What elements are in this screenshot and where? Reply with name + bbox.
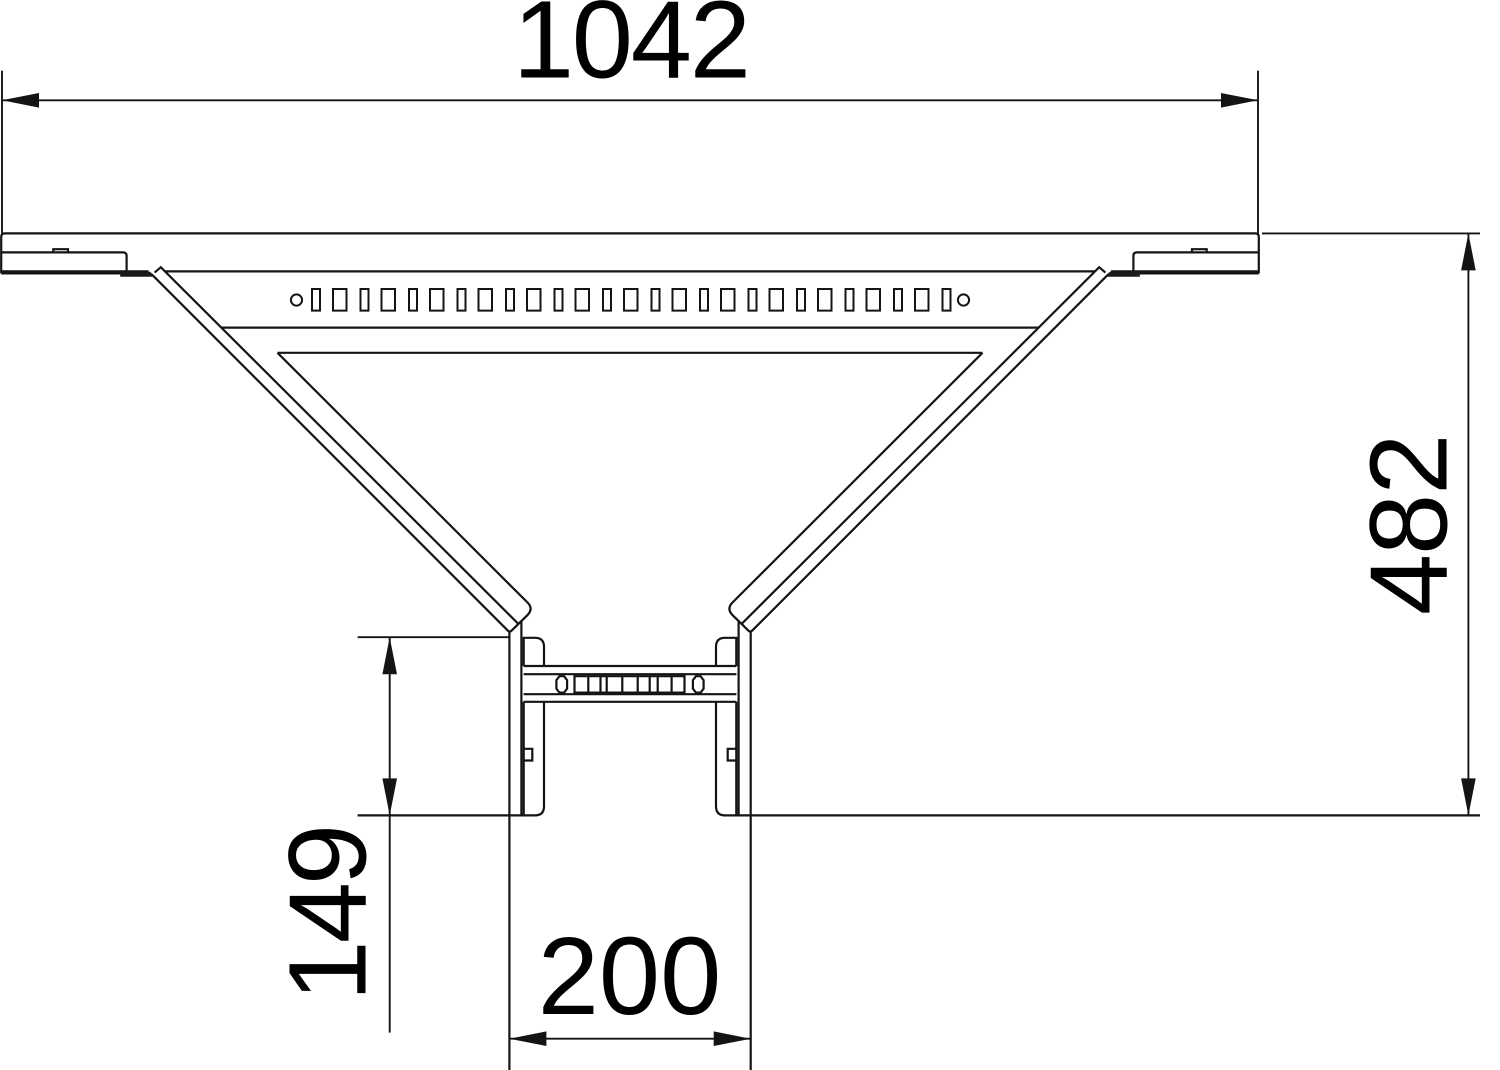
svg-text:200: 200 xyxy=(538,915,722,1038)
svg-text:1042: 1042 xyxy=(513,0,749,101)
svg-text:149: 149 xyxy=(267,827,390,1002)
svg-text:482: 482 xyxy=(1347,435,1470,616)
